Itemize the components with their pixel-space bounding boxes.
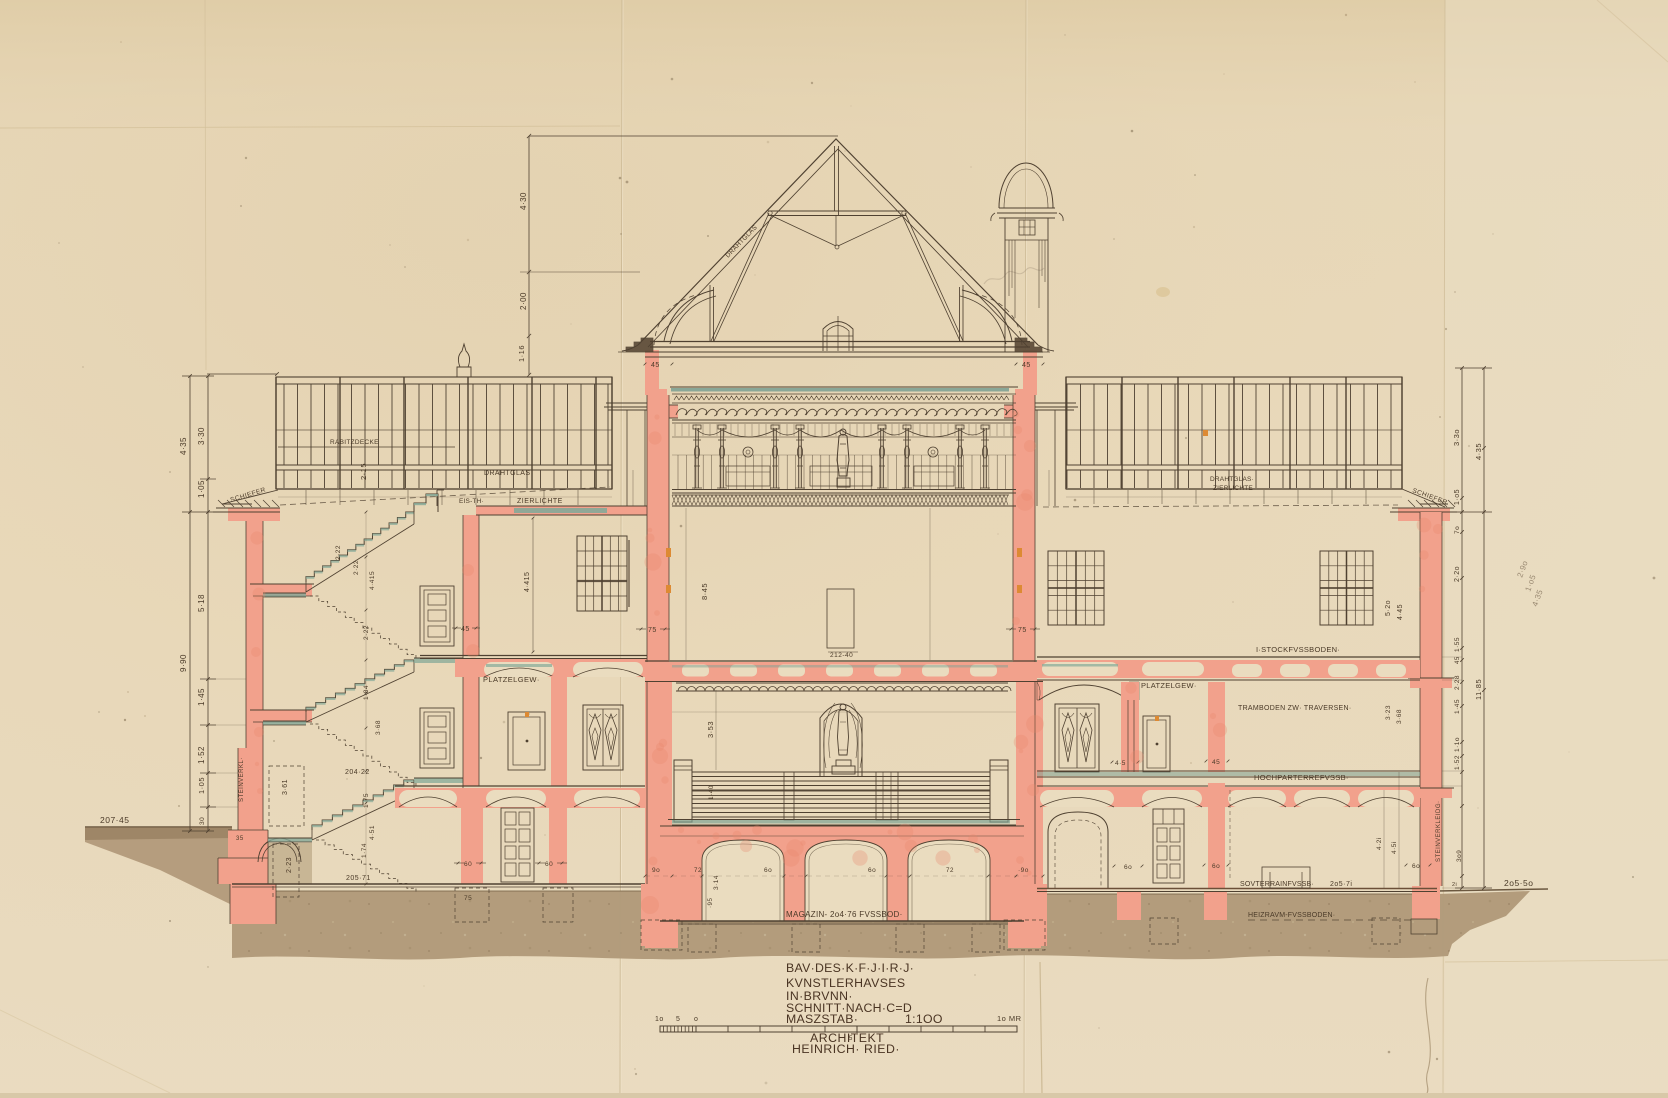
svg-text:4·35: 4·35	[179, 437, 188, 455]
svg-text:2·22: 2·22	[363, 625, 370, 640]
svg-text:ZIERLICHTE: ZIERLICHTE	[517, 498, 563, 505]
svg-text:4·30: 4·30	[519, 192, 528, 210]
svg-text:1:1OO: 1:1OO	[905, 1012, 943, 1026]
svg-text:3·68: 3·68	[1396, 709, 1403, 724]
svg-text:1·75: 1·75	[363, 793, 370, 808]
svg-text:6o: 6o	[764, 867, 772, 874]
svg-text:1·1o: 1·1o	[1454, 737, 1461, 752]
svg-text:2i: 2i	[1452, 882, 1457, 888]
svg-text:7o: 7o	[1454, 526, 1461, 534]
svg-text:3o9: 3o9	[1456, 850, 1463, 862]
svg-text:6o: 6o	[868, 867, 876, 874]
svg-text:PLATZELGEW·: PLATZELGEW·	[483, 675, 540, 684]
svg-text:1·05: 1·05	[197, 777, 206, 794]
svg-text:KVNSTLERHAVSES: KVNSTLERHAVSES	[786, 976, 906, 990]
svg-text:6o: 6o	[1412, 863, 1420, 870]
svg-text:45: 45	[461, 626, 470, 633]
svg-text:8·45: 8·45	[700, 583, 709, 600]
svg-text:BAV·DES·K·F·J·I·R·J·: BAV·DES·K·F·J·I·R·J·	[786, 961, 914, 975]
svg-text:SOVTERRAINFVSSB·: SOVTERRAINFVSSB·	[1240, 881, 1314, 888]
svg-text:75: 75	[648, 627, 657, 634]
svg-text:2o5·7i: 2o5·7i	[1330, 881, 1352, 888]
svg-text:4·35: 4·35	[1474, 443, 1483, 460]
svg-text:1·74: 1·74	[361, 843, 368, 858]
svg-text:30: 30	[199, 817, 206, 825]
svg-text:2·28: 2·28	[1454, 675, 1461, 690]
svg-text:5: 5	[849, 1036, 853, 1042]
svg-text:3·14: 3·14	[713, 875, 720, 890]
svg-text:5·18: 5·18	[197, 594, 206, 612]
svg-text:3·30: 3·30	[197, 427, 206, 445]
svg-text:2·15: 2·15	[359, 463, 368, 480]
svg-text:TRAMBODEN ZW· TRAVERSEN·: TRAMBODEN ZW· TRAVERSEN·	[1238, 705, 1352, 712]
svg-text:1o: 1o	[655, 1016, 664, 1023]
svg-text:72: 72	[946, 867, 954, 874]
svg-text:EIS-TH·: EIS-TH·	[459, 498, 484, 505]
svg-text:60: 60	[464, 861, 472, 868]
svg-text:1·55: 1·55	[1454, 637, 1461, 652]
svg-text:MAGAZIN- 2o4·76 FVSSBOD·: MAGAZIN- 2o4·76 FVSSBOD·	[786, 910, 903, 919]
svg-text:o: o	[694, 1016, 698, 1023]
svg-text:2·2o: 2·2o	[1454, 566, 1461, 582]
svg-text:STEINVERKLEIDG·: STEINVERKLEIDG·	[1436, 800, 1442, 862]
svg-text:MASZSTAB·: MASZSTAB·	[786, 1012, 858, 1026]
svg-text:4·5i: 4·5i	[1391, 841, 1398, 854]
svg-text:1·45: 1·45	[1454, 699, 1461, 714]
svg-text:RABITZDECKE: RABITZDECKE	[330, 439, 379, 446]
svg-text:72: 72	[694, 867, 702, 874]
svg-text:3·68: 3·68	[375, 720, 382, 735]
svg-text:STEINVERKL·: STEINVERKL·	[239, 757, 245, 802]
svg-text:1·o5: 1·o5	[1454, 489, 1461, 505]
svg-text:6o: 6o	[1212, 863, 1220, 870]
svg-text:1·52: 1·52	[197, 746, 206, 764]
svg-text:75: 75	[464, 895, 472, 902]
svg-text:5: 5	[676, 1016, 680, 1023]
svg-text:2·23: 2·23	[286, 857, 293, 873]
svg-text:HEIZRAVM-FVSSBODEN·: HEIZRAVM-FVSSBODEN·	[1248, 912, 1335, 919]
svg-text:9·90: 9·90	[179, 654, 188, 672]
svg-text:9o: 9o	[652, 867, 660, 874]
svg-text:205·71: 205·71	[346, 875, 371, 882]
svg-text:I·STOCKFVSSBODEN·: I·STOCKFVSSBODEN·	[1256, 645, 1340, 654]
svg-text:4·415: 4·415	[524, 572, 531, 592]
svg-text:1·45: 1·45	[197, 688, 206, 706]
svg-text:2·00: 2·00	[519, 292, 528, 310]
svg-text:HOCHPARTERREFVSSB·: HOCHPARTERREFVSSB·	[1254, 773, 1349, 782]
svg-text:60: 60	[545, 861, 553, 868]
svg-text:DRAHTGLAS: DRAHTGLAS	[484, 470, 530, 477]
svg-text:4·45: 4·45	[1397, 604, 1404, 620]
svg-text:2·22: 2·22	[353, 560, 360, 575]
svg-text:45: 45	[1212, 759, 1220, 766]
svg-text:1·52: 1·52	[1454, 755, 1461, 770]
svg-text:6o: 6o	[1124, 864, 1132, 871]
svg-text:212-40: 212-40	[830, 652, 853, 659]
svg-text:ZIERLICHTE: ZIERLICHTE	[1213, 485, 1253, 492]
svg-text:4·415: 4·415	[369, 571, 376, 590]
svg-text:3·53: 3·53	[706, 721, 715, 738]
svg-text:1o MR: 1o MR	[997, 1014, 1022, 1023]
svg-text:4·51: 4·51	[369, 825, 376, 840]
svg-text:45: 45	[1455, 656, 1461, 664]
svg-text:4·5: 4·5	[1115, 760, 1126, 767]
svg-text:·95: ·95	[707, 897, 714, 908]
svg-text:11·85: 11·85	[1474, 679, 1483, 700]
svg-text:45: 45	[1022, 362, 1031, 369]
svg-text:45: 45	[651, 362, 660, 369]
svg-text:1·16: 1·16	[517, 345, 526, 362]
svg-text:PLATZELGEW·: PLATZELGEW·	[1141, 681, 1197, 690]
svg-text:3·23: 3·23	[1385, 705, 1392, 720]
svg-text:DRAHTGLAS·: DRAHTGLAS·	[1210, 476, 1254, 483]
svg-text:2·22: 2·22	[335, 545, 342, 560]
svg-text:75: 75	[1018, 627, 1027, 634]
svg-text:1·05: 1·05	[197, 480, 206, 498]
svg-text:207·45: 207·45	[100, 815, 129, 825]
svg-text:35: 35	[236, 836, 244, 842]
svg-text:5·2o: 5·2o	[1385, 600, 1392, 616]
svg-text:2o5·5o: 2o5·5o	[1504, 878, 1533, 888]
svg-text:3·61: 3·61	[282, 779, 289, 795]
svg-text:4·2i: 4·2i	[1376, 837, 1383, 850]
svg-text:3·3o: 3·3o	[1452, 429, 1461, 446]
svg-text:1·40: 1·40	[708, 785, 715, 800]
svg-text:HEINRICH· RIED·: HEINRICH· RIED·	[792, 1042, 900, 1056]
